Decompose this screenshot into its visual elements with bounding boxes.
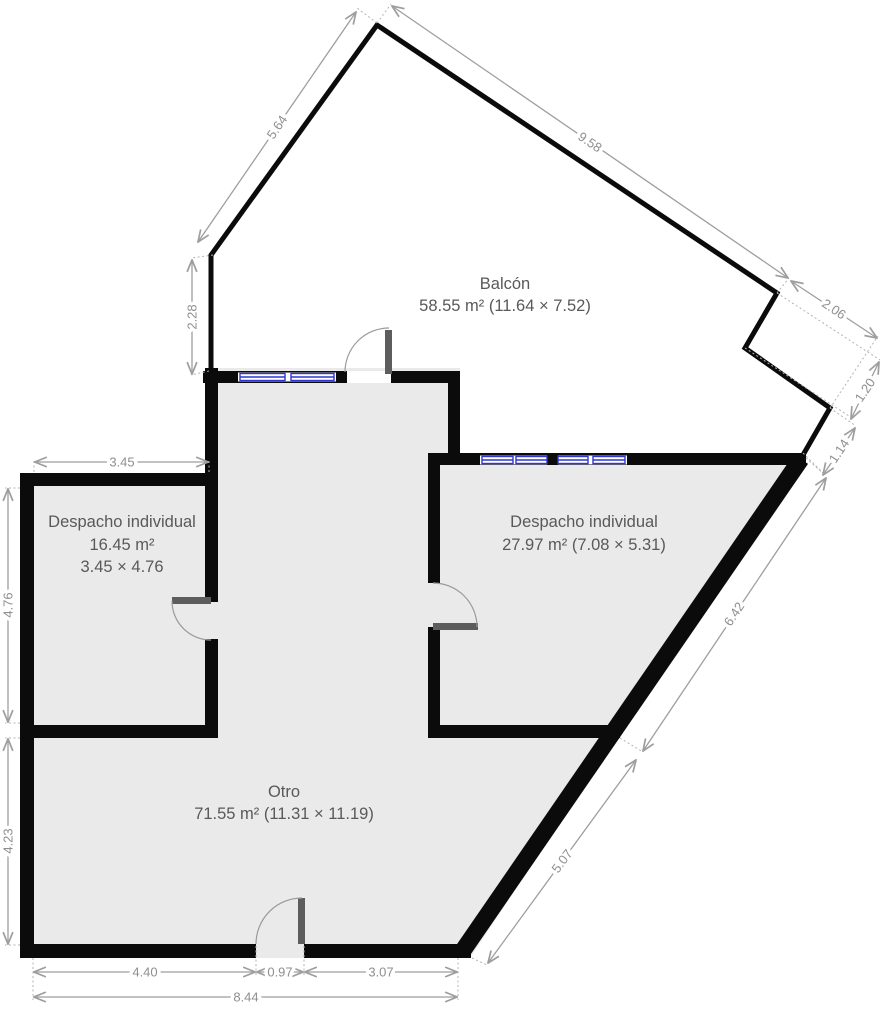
dim-label-5-64: 5.64 [264, 112, 291, 141]
wall-despacho-left-top [20, 473, 218, 486]
room-despacho-right-name: Despacho individual [510, 513, 658, 531]
extension-line [745, 348, 852, 418]
door-leaf-despacho-left [172, 597, 211, 604]
wall-exterior-left [20, 473, 34, 958]
dim-label-6-42: 6.42 [721, 599, 748, 628]
dim-label-2-28: 2.28 [185, 304, 200, 329]
room-otro-name: Otro [268, 783, 300, 801]
wall-vestibule-right [448, 371, 460, 465]
door-leaf-balcony [385, 330, 392, 374]
extension-line [620, 738, 643, 752]
dim-label-4-40: 4.40 [132, 965, 157, 980]
extension-line [472, 958, 487, 965]
opening-bottom-door [256, 944, 304, 958]
dim-label-0-97: 0.97 [267, 965, 292, 980]
room-despacho-right-area: 27.97 m² (7.08 × 5.31) [502, 536, 666, 554]
wall-despacho-right-left-lower [428, 627, 440, 738]
dim-label-8-44: 8.44 [233, 990, 258, 1005]
opening-balcony-door [347, 371, 391, 383]
room-despacho-left-name: Despacho individual [48, 513, 196, 531]
window-divider [547, 453, 558, 465]
wall-despacho-left-bottom [20, 725, 218, 738]
dim-label-4-23: 4.23 [1, 828, 16, 853]
door-leaf-bottom [298, 898, 305, 944]
opening-despacho-right-door [428, 583, 440, 627]
wall-despacho-right-left-upper [428, 453, 440, 583]
floor-plan: 5.64 9.58 2.06 1.20 1.14 2.28 3.45 4.76 … [0, 0, 894, 1024]
door-leaf-despacho-right [433, 623, 478, 630]
dim-label-4-76: 4.76 [1, 592, 16, 617]
dim-label-2-06: 2.06 [819, 296, 848, 323]
extension-line [777, 278, 789, 293]
room-otro-area: 71.55 m² (11.31 × 11.19) [194, 805, 374, 823]
extension-line [806, 458, 826, 476]
wall-despacho-right-bottom [428, 725, 620, 738]
room-balcon-name: Balcón [480, 275, 530, 293]
dim-label-1-14: 1.14 [826, 436, 853, 465]
extension-line [377, 4, 391, 23]
wall-despacho-left-right-lower [205, 639, 218, 738]
dim-label-3-07: 3.07 [368, 965, 393, 980]
wall-exterior-bottom-left [20, 944, 256, 958]
room-despacho-left-size: 3.45 × 4.76 [80, 558, 163, 576]
dim-label-1-20: 1.20 [852, 375, 879, 404]
extension-line [357, 8, 377, 23]
wall-exterior-bottom-right [304, 944, 471, 958]
opening-despacho-left-door [205, 602, 218, 639]
room-despacho-left-area: 16.45 m² [89, 536, 155, 554]
room-balcon-area: 58.55 m² (11.64 × 7.52) [419, 297, 591, 315]
dim-label-3-45: 3.45 [109, 455, 134, 470]
floor-plan-page: 5.64 9.58 2.06 1.20 1.14 2.28 3.45 4.76 … [0, 0, 894, 1024]
dim-label-9-58: 9.58 [575, 129, 604, 156]
dim-label-5-07: 5.07 [548, 846, 575, 875]
door-arc-balcony [345, 328, 389, 372]
